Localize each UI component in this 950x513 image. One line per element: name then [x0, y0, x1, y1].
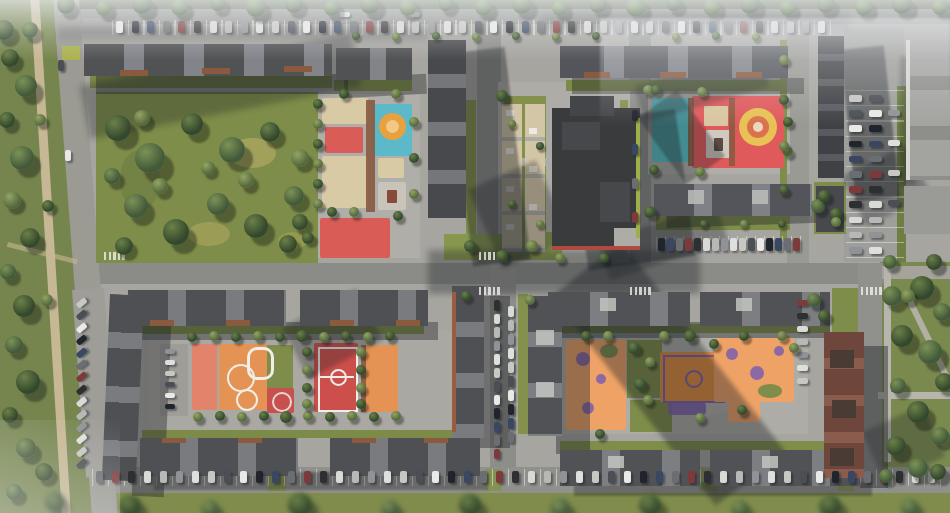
- crosswalk-stripe: [870, 287, 872, 295]
- tree: [291, 149, 309, 167]
- balcony-strip-1: [120, 70, 148, 76]
- car: [869, 141, 882, 148]
- tree: [152, 178, 168, 194]
- tree: [391, 89, 401, 99]
- car: [784, 471, 791, 483]
- car: [632, 212, 638, 223]
- car: [494, 368, 500, 379]
- car: [784, 238, 791, 251]
- tree: [393, 211, 403, 221]
- balcony-bl-2: [226, 320, 250, 326]
- haze-bottom-left: [0, 420, 120, 513]
- car: [849, 247, 862, 254]
- car: [448, 471, 455, 483]
- tree: [313, 119, 323, 129]
- building-br-north-a: [548, 292, 690, 326]
- tree: [0, 264, 16, 280]
- tree: [313, 99, 323, 109]
- tree: [275, 332, 285, 342]
- tree: [639, 494, 661, 513]
- car: [176, 471, 183, 483]
- pg-circle-4: [726, 348, 738, 360]
- tree: [215, 411, 225, 421]
- tree: [599, 253, 609, 263]
- tree: [933, 303, 950, 321]
- play-canopy-2: [529, 128, 537, 134]
- crosswalk-stripe: [488, 252, 490, 260]
- car: [65, 150, 71, 161]
- tree: [238, 172, 254, 188]
- car: [775, 238, 782, 251]
- car: [736, 471, 743, 483]
- tree: [20, 228, 40, 248]
- car: [797, 365, 808, 371]
- tree: [363, 332, 373, 342]
- car: [688, 471, 695, 483]
- pg-green-patch-2: [758, 384, 782, 398]
- car: [224, 471, 231, 483]
- playground-red-1: [325, 127, 363, 153]
- tree: [628, 342, 640, 354]
- crosswalk-stripe: [479, 252, 481, 260]
- tree: [349, 207, 359, 217]
- tree: [259, 411, 269, 421]
- car: [144, 471, 151, 483]
- roof-frame-7: [608, 456, 624, 468]
- tree: [595, 429, 605, 439]
- tree: [356, 383, 366, 393]
- pg-circle-6: [774, 346, 784, 356]
- car: [888, 170, 900, 176]
- tree: [645, 357, 655, 367]
- car: [592, 471, 599, 483]
- balcony-bl-8: [424, 438, 448, 443]
- tree: [347, 411, 357, 421]
- car: [384, 471, 391, 483]
- balcony-strip-2: [202, 68, 230, 74]
- tree: [201, 500, 219, 513]
- tree: [356, 347, 366, 357]
- car: [816, 471, 823, 483]
- tree: [16, 370, 40, 394]
- tree: [883, 255, 897, 269]
- car: [888, 200, 900, 206]
- car: [416, 471, 423, 483]
- tree: [496, 250, 508, 262]
- tree: [779, 185, 789, 195]
- crosswalk-stripe: [479, 287, 481, 295]
- car: [508, 306, 514, 317]
- tree: [634, 378, 646, 390]
- car: [849, 141, 862, 148]
- building-brick-roof-3: [830, 448, 854, 466]
- roof-frame-3: [536, 330, 554, 345]
- car: [576, 471, 583, 483]
- car: [632, 178, 638, 189]
- car: [849, 201, 862, 208]
- tree: [296, 330, 308, 342]
- car: [832, 471, 839, 483]
- tree: [739, 331, 749, 341]
- car: [797, 313, 808, 319]
- car: [797, 339, 808, 345]
- pg-circle-2: [596, 374, 606, 384]
- tree: [104, 168, 120, 184]
- car: [888, 140, 900, 146]
- tree: [890, 378, 906, 394]
- tree: [279, 235, 297, 253]
- car: [849, 232, 862, 239]
- car: [400, 471, 407, 483]
- tree: [115, 237, 133, 255]
- car: [624, 471, 631, 483]
- car: [869, 232, 882, 239]
- tree: [181, 113, 203, 135]
- tree: [931, 427, 949, 445]
- tree: [409, 189, 419, 199]
- car: [240, 471, 247, 483]
- car: [165, 360, 175, 365]
- car: [208, 471, 215, 483]
- tree: [369, 412, 379, 422]
- building-bl-east-balcony: [452, 292, 456, 432]
- tree: [879, 469, 893, 483]
- car: [496, 471, 503, 483]
- tree: [643, 395, 653, 405]
- car: [869, 186, 882, 193]
- tree: [508, 200, 516, 208]
- car: [494, 422, 500, 433]
- haze-top-right: [600, 18, 950, 128]
- tree: [313, 139, 323, 149]
- tree: [339, 89, 349, 99]
- tree: [42, 200, 54, 212]
- tree: [935, 373, 950, 391]
- car: [797, 378, 808, 384]
- tree: [737, 405, 747, 415]
- car: [676, 238, 683, 251]
- tree: [325, 412, 335, 422]
- kindergarten-roof-patch-2: [600, 182, 630, 222]
- crosswalk-stripe: [113, 252, 115, 260]
- crosswalk-stripe: [644, 287, 646, 295]
- tree: [525, 295, 535, 305]
- tree: [244, 214, 268, 238]
- crosswalk-stripe: [648, 287, 650, 295]
- crosswalk-stripe: [639, 287, 641, 295]
- park-patch-2: [188, 222, 230, 246]
- car: [272, 471, 279, 483]
- aerial-site-plan: [0, 0, 950, 513]
- car: [508, 376, 514, 387]
- tree: [695, 413, 705, 423]
- car: [849, 186, 862, 193]
- roof-frame-2: [752, 190, 768, 204]
- tree: [908, 458, 928, 478]
- tree: [163, 219, 189, 245]
- car: [494, 381, 500, 392]
- car: [508, 320, 514, 331]
- car: [667, 238, 674, 251]
- car: [544, 471, 551, 483]
- car: [752, 471, 759, 483]
- car: [320, 471, 327, 483]
- car: [869, 171, 882, 178]
- tree: [237, 412, 247, 422]
- crosswalk-stripe: [484, 287, 486, 295]
- car: [800, 471, 807, 483]
- crosswalk-stripe: [861, 287, 863, 295]
- tree: [292, 214, 308, 230]
- tree: [461, 291, 471, 301]
- car: [494, 300, 500, 311]
- football-center-circle: [330, 369, 347, 386]
- car: [608, 471, 615, 483]
- car: [849, 156, 862, 163]
- tree: [284, 186, 304, 206]
- car: [739, 238, 746, 251]
- tree: [779, 141, 789, 151]
- building-tower: [428, 40, 466, 218]
- tree: [15, 75, 37, 97]
- tree: [695, 167, 705, 177]
- balcony-bl-4: [396, 320, 420, 326]
- car: [494, 435, 500, 446]
- tree: [684, 330, 696, 342]
- car: [869, 201, 882, 208]
- car: [508, 418, 514, 429]
- car: [494, 449, 500, 460]
- tree: [302, 399, 312, 409]
- court-circle-2: [236, 389, 258, 411]
- tree: [302, 347, 312, 357]
- crosswalk-stripe: [104, 252, 106, 260]
- car: [508, 404, 514, 415]
- tree: [930, 464, 946, 480]
- car: [508, 334, 514, 345]
- tree: [10, 146, 34, 170]
- tree: [644, 206, 656, 218]
- car: [864, 471, 871, 483]
- car: [721, 238, 728, 251]
- car: [128, 471, 135, 483]
- car: [432, 471, 439, 483]
- car: [656, 471, 663, 483]
- tree: [901, 499, 919, 513]
- tree: [818, 190, 830, 202]
- car: [730, 238, 737, 251]
- tree: [302, 383, 312, 393]
- crosswalk-stripe: [635, 287, 637, 295]
- path-park-right-h: [878, 392, 950, 399]
- tree: [313, 159, 323, 169]
- car: [672, 471, 679, 483]
- car: [508, 348, 514, 359]
- car: [703, 238, 710, 251]
- pergola-upper-left: [366, 100, 375, 212]
- tree: [731, 500, 749, 513]
- tree: [526, 240, 538, 252]
- tree: [124, 194, 148, 218]
- tree: [550, 498, 570, 513]
- tree: [777, 331, 787, 341]
- pg-circle-5: [750, 366, 764, 380]
- car: [256, 471, 263, 483]
- tree: [886, 436, 906, 456]
- tree: [659, 331, 669, 341]
- tree: [253, 331, 263, 341]
- tree: [302, 365, 312, 375]
- car: [336, 471, 343, 483]
- car: [165, 349, 175, 354]
- tree: [649, 165, 659, 175]
- car: [304, 471, 311, 483]
- car: [720, 471, 727, 483]
- roof-frame-8: [762, 456, 778, 468]
- tree: [555, 253, 565, 263]
- tree: [34, 114, 46, 126]
- lawn-gardens-bl-bottom: [142, 430, 478, 438]
- car: [165, 404, 175, 409]
- car: [748, 238, 755, 251]
- tree: [807, 293, 821, 307]
- tree: [119, 495, 141, 513]
- playground-sand-3: [378, 158, 404, 178]
- tree: [327, 207, 337, 217]
- car: [494, 314, 500, 325]
- car: [494, 327, 500, 338]
- car: [797, 326, 808, 332]
- crosswalk-stripe: [497, 287, 499, 295]
- car: [512, 471, 519, 483]
- car: [658, 238, 665, 251]
- tree: [303, 411, 313, 421]
- tree: [207, 193, 229, 215]
- roof-frame-4: [536, 382, 554, 397]
- car: [632, 144, 638, 155]
- car: [768, 471, 775, 483]
- car: [694, 238, 701, 251]
- car: [352, 471, 359, 483]
- tree: [391, 411, 401, 421]
- balcony-bl-7: [352, 438, 376, 443]
- crosswalk-stripe: [866, 287, 868, 295]
- tree: [260, 122, 280, 142]
- tree: [135, 143, 165, 173]
- car: [494, 395, 500, 406]
- tree: [105, 115, 131, 141]
- car: [704, 471, 711, 483]
- car: [165, 382, 175, 387]
- car: [712, 238, 719, 251]
- crosswalk-stripe: [493, 287, 495, 295]
- tree: [496, 90, 508, 102]
- car: [288, 471, 295, 483]
- car: [848, 471, 855, 483]
- tree: [831, 217, 841, 227]
- tree: [789, 343, 799, 353]
- lawn-br-ne: [832, 288, 858, 332]
- kindergarten-roof-patch-1: [562, 122, 600, 150]
- roof-frame-1: [688, 190, 704, 204]
- car: [494, 408, 500, 419]
- tree: [385, 331, 395, 341]
- building-bl-east: [452, 286, 484, 438]
- playground-salmon: [192, 344, 217, 410]
- tree: [891, 325, 913, 347]
- tree: [709, 339, 719, 349]
- car: [640, 471, 647, 483]
- track-ring: [247, 347, 274, 380]
- car: [560, 471, 567, 483]
- tree: [319, 332, 329, 342]
- playground-orange-bl: [365, 345, 398, 412]
- crosswalk-stripe: [109, 252, 111, 260]
- balcony-bl-5: [162, 438, 186, 443]
- tree: [508, 120, 516, 128]
- crosswalk-stripe: [630, 287, 632, 295]
- tree: [356, 399, 366, 409]
- playground-sand-1: [322, 98, 368, 124]
- tree: [536, 142, 544, 150]
- playground-tower: [387, 190, 397, 203]
- tree: [193, 412, 203, 422]
- tree: [231, 332, 241, 342]
- car: [165, 371, 175, 376]
- crosswalk-stripe: [484, 252, 486, 260]
- car: [480, 471, 487, 483]
- tree: [409, 117, 419, 127]
- tree: [3, 191, 21, 209]
- car: [508, 362, 514, 373]
- playground-sand-2: [322, 156, 368, 208]
- balcony-bl-3: [330, 320, 354, 326]
- car: [58, 60, 64, 71]
- tree: [926, 254, 942, 270]
- crosswalk-stripe: [875, 287, 877, 295]
- tree: [280, 411, 292, 423]
- court-red-mini-ring: [272, 392, 292, 412]
- roof-frame-6: [736, 298, 752, 311]
- car: [896, 471, 903, 483]
- car: [508, 432, 514, 443]
- tree: [700, 220, 708, 228]
- tree: [134, 110, 150, 126]
- tree: [302, 232, 314, 244]
- tree: [13, 295, 35, 317]
- tree: [288, 493, 312, 513]
- tree: [409, 153, 419, 163]
- crosswalk-stripe: [488, 287, 490, 295]
- tree: [907, 401, 929, 423]
- car: [797, 352, 808, 358]
- car: [494, 354, 500, 365]
- car: [766, 238, 773, 251]
- car: [869, 217, 882, 224]
- car: [869, 247, 882, 254]
- building-commercial-ne-2: [904, 186, 950, 234]
- car: [528, 471, 535, 483]
- car: [165, 393, 175, 398]
- crosswalk-stripe: [493, 252, 495, 260]
- car: [849, 217, 862, 224]
- lawn-verge-central-low-east: [518, 294, 528, 434]
- car: [160, 471, 167, 483]
- kindergarten-facade-red: [552, 246, 640, 250]
- building-brick-roof-2: [832, 400, 856, 418]
- tree: [313, 179, 323, 189]
- playground-red-2: [320, 218, 390, 258]
